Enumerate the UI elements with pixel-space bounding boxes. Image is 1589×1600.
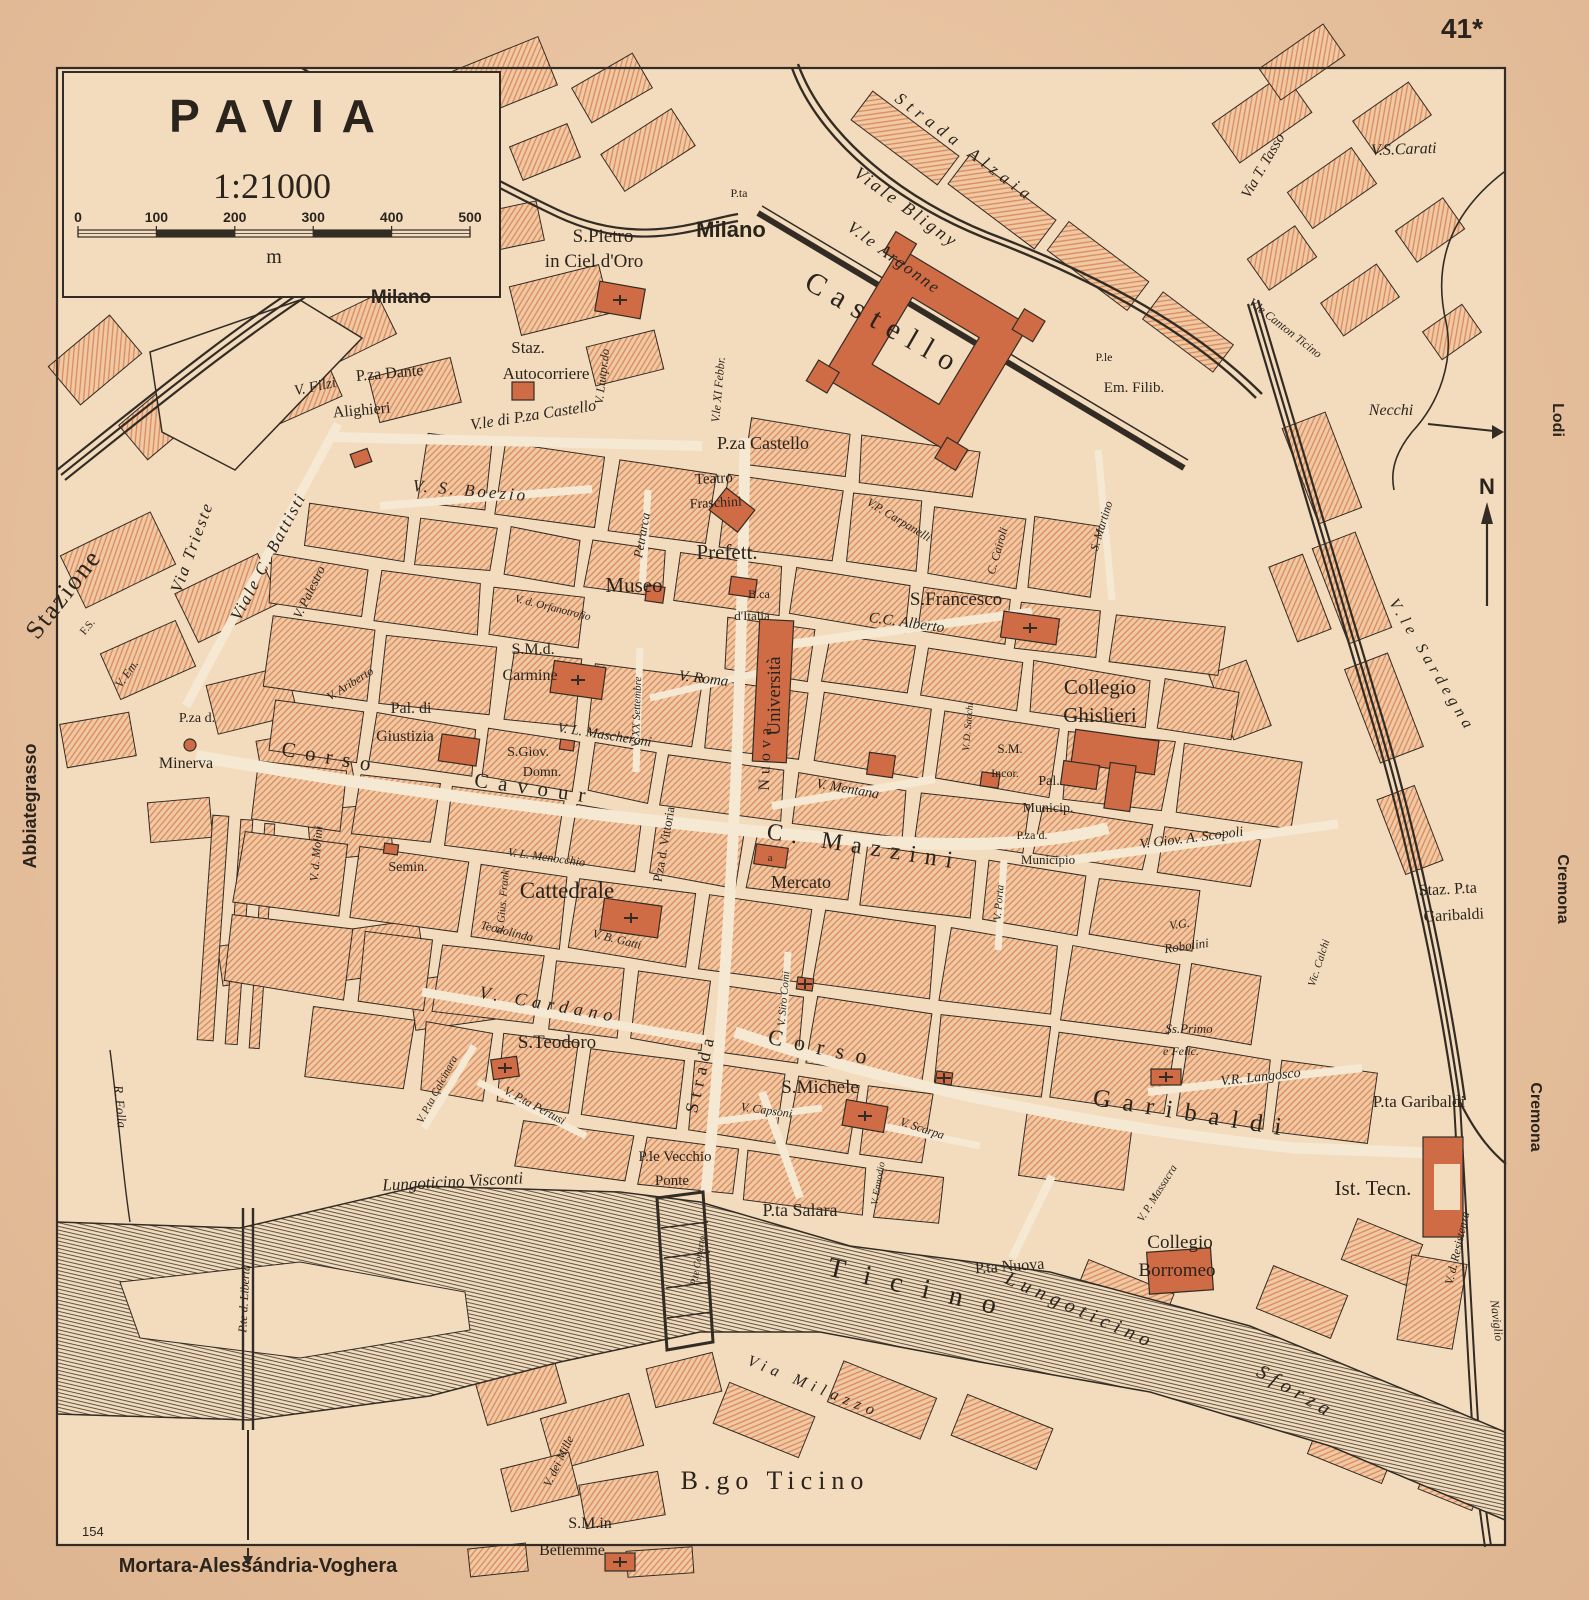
label-ghislieri: Ghislieri — [1063, 703, 1137, 727]
label-mercato: Mercato — [771, 872, 831, 892]
label-minerva: Minerva — [159, 755, 213, 772]
scale-tick-500: 500 — [458, 209, 482, 225]
label-museo: Museo — [605, 573, 662, 597]
city-block — [581, 1049, 684, 1129]
outskirt-block — [147, 797, 212, 842]
label-abbiategrasso: Abbiategrasso — [20, 743, 40, 868]
label-pal-di: Pal. di — [391, 700, 432, 717]
city-block — [812, 910, 935, 999]
scale-tick-400: 400 — [380, 209, 404, 225]
label-s-giov: S.Giov. — [507, 745, 549, 760]
scale-tick-200: 200 — [223, 209, 247, 225]
label-em-filib: Em. Filib. — [1104, 380, 1164, 396]
title-box: PAVIA 1:21000 0100200300400500 m — [63, 72, 500, 297]
label-fraschini: Fraschini — [689, 495, 742, 513]
label-p-ta-salara: P.ta Salara — [763, 1200, 838, 1220]
city-block — [358, 931, 432, 1010]
label-ponte: Ponte — [655, 1173, 690, 1189]
label-semin: Semin. — [388, 860, 427, 875]
minerva-monument — [184, 739, 196, 751]
city-block — [263, 616, 375, 701]
label-prefett: Prefett. — [696, 540, 757, 564]
label-s-pietro: S.Pietro — [573, 226, 634, 247]
label-p-le: P.le — [1095, 350, 1112, 364]
label-ss-primo: Ss.Primo — [1165, 1021, 1213, 1036]
label-v-s-carati: V.S.Carati — [1371, 140, 1437, 159]
page-number: 41* — [1441, 13, 1483, 44]
label-betlemme: Betlemme — [539, 1542, 605, 1559]
label-s-m-in: S.M.in — [568, 1515, 612, 1532]
label-giustizia: Giustizia — [376, 728, 434, 745]
label-p-ta-garibaldi: P.ta Garibaldi — [1373, 1092, 1466, 1111]
label-borromeo: Borromeo — [1138, 1260, 1215, 1281]
label-municipio: Municipio — [1021, 852, 1075, 867]
label-staz-p-ta: Staz. P.ta — [1418, 879, 1477, 899]
ist-tecn-courtyard — [1434, 1164, 1460, 1210]
label-v-g: V.G. — [1168, 916, 1190, 933]
label-s-teodoro: S.Teodoro — [518, 1032, 596, 1053]
outskirt-block — [626, 1547, 694, 1578]
label-cattedrale: Cattedrale — [520, 878, 615, 903]
label-cremona: Cremona — [1527, 1082, 1544, 1151]
scale-tick-100: 100 — [145, 209, 169, 225]
city-block — [1028, 516, 1099, 597]
label-p-ta: P.ta — [730, 186, 748, 200]
label-nuova: Nuova — [756, 723, 775, 791]
label-municip: Municip. — [1023, 801, 1074, 816]
city-block — [698, 895, 811, 983]
pavia-city-map: PAVIA 1:21000 0100200300400500 m 41* 154… — [0, 0, 1589, 1600]
monument-building — [383, 843, 398, 855]
label-s-francesco: S.Francesco — [910, 589, 1002, 610]
monument-building — [1104, 762, 1136, 811]
label-necchi: Necchi — [1368, 402, 1413, 419]
label-s-michele: S.Michele — [781, 1077, 859, 1098]
outskirt-block — [468, 1543, 529, 1577]
label-incor: Incor. — [991, 766, 1019, 780]
scale-tick-300: 300 — [302, 209, 326, 225]
label-d-italia: d'Italia — [734, 608, 770, 623]
map-scale-ratio: 1:21000 — [213, 166, 331, 206]
label-garibaldi: Garibaldi — [1423, 905, 1485, 925]
scale-tick-0: 0 — [74, 209, 82, 225]
monument-building — [559, 739, 574, 751]
city-block — [305, 1007, 415, 1089]
label-staz: Staz. — [511, 338, 545, 357]
map-title: PAVIA — [169, 90, 393, 142]
label-p-za-d: P.za d. — [1017, 828, 1048, 842]
label-lodi: Lodi — [1549, 403, 1566, 437]
label-s-m: S.M. — [997, 741, 1022, 756]
label-carmine: Carmine — [502, 667, 557, 684]
monument-building — [512, 382, 534, 400]
scale-bar-segment — [313, 230, 391, 237]
label-a: a — [768, 852, 773, 864]
label-collegio: Collegio — [1147, 1232, 1212, 1253]
label-p-za-castello: P.za Castello — [717, 433, 809, 453]
label-collegio: Collegio — [1064, 675, 1136, 699]
monument-building — [867, 752, 896, 777]
map-page: PAVIA 1:21000 0100200300400500 m 41* 154… — [0, 0, 1589, 1600]
monument-building — [1061, 761, 1100, 790]
label-milano: Milano — [371, 287, 431, 308]
plate-number: 154 — [82, 1524, 104, 1539]
label-milano: Milano — [696, 217, 766, 242]
label-e-felic: e Felic. — [1163, 1044, 1199, 1058]
scale-unit: m — [266, 246, 282, 268]
label-autocorriere: Autocorriere — [503, 364, 590, 383]
label-teatro: Teatro — [694, 470, 733, 488]
label-in-ciel-d-oro: in Ciel d'Oro — [545, 251, 643, 272]
north-label: N — [1479, 474, 1495, 499]
label-s-m-d: S.M.d. — [511, 641, 554, 658]
label-b-go-ticino: B.go Ticino — [681, 1466, 870, 1495]
label-p-za-d: P.za d. — [179, 711, 215, 726]
label-ist-tecn: Ist. Tecn. — [1335, 1176, 1412, 1200]
label-p-le-vecchio: P.le Vecchio — [638, 1149, 711, 1165]
label-cremona: Cremona — [1554, 854, 1571, 923]
bottom-caption: Mortara-Alessándria-Voghera — [119, 1555, 398, 1577]
label-b-ca: B.ca — [748, 587, 770, 601]
label-pal: Pal. — [1038, 774, 1059, 789]
monument-building — [438, 734, 479, 766]
city-block — [233, 832, 348, 916]
scale-bar-segment — [156, 230, 234, 237]
